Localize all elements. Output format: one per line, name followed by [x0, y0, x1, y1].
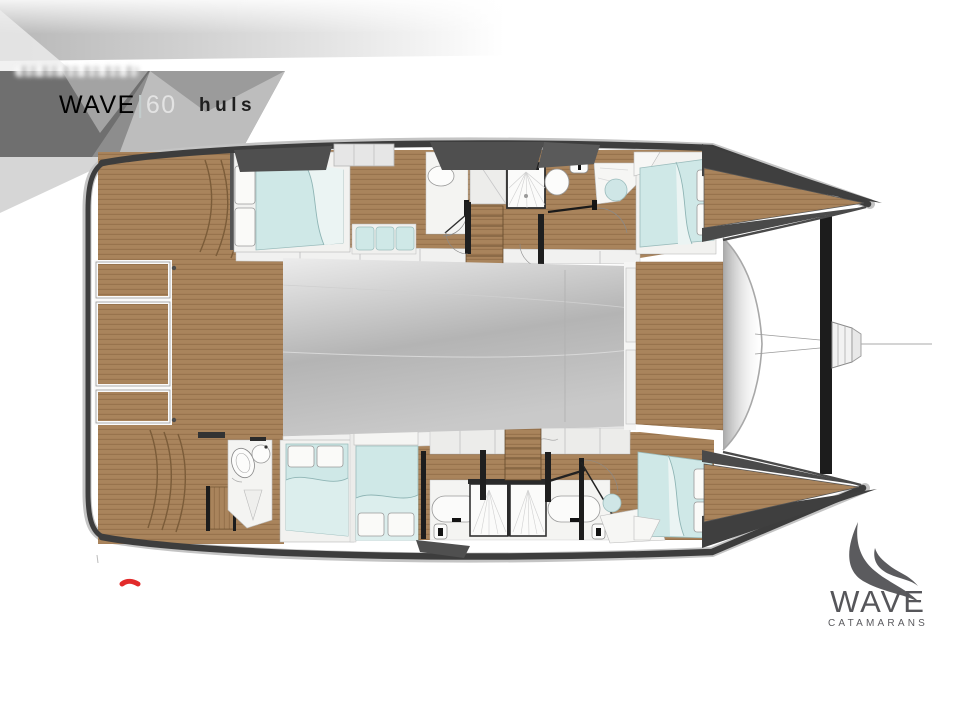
stair-post-a [480, 450, 486, 500]
faucet-mark [452, 518, 461, 522]
model-name: WAVE [59, 91, 136, 119]
stair-post-b [538, 214, 544, 268]
page: WAVE|60 huls WAVE CATAMARANS [0, 0, 960, 720]
starboard-aft-cabin [280, 440, 354, 542]
model-divider: | [136, 91, 146, 119]
coachroof-edge-c [538, 142, 600, 168]
logo-subtitle: CATAMARANS [820, 618, 936, 629]
settee-cushion [376, 227, 394, 250]
door-post [592, 200, 597, 210]
faucet-dot [264, 445, 267, 448]
top-gradient-band [0, 0, 700, 61]
walk-strip-b [626, 350, 636, 424]
cabin-divider [350, 430, 356, 542]
forward-crossbeam [820, 216, 832, 474]
logo-title: WAVE [820, 584, 936, 620]
trampoline-area [723, 238, 820, 450]
door-lintel [250, 437, 266, 441]
hatch-3 [96, 390, 170, 423]
toilet-flush-icon [438, 528, 443, 536]
stall-divider [507, 484, 510, 536]
door-post [579, 458, 584, 540]
bridle-line-a [755, 334, 820, 340]
deck-hatch [334, 144, 394, 166]
basin-oval [545, 169, 569, 195]
model-size: 60 [146, 91, 177, 119]
coachroof-edge-b [430, 142, 544, 170]
toilet-flush-icon [596, 528, 601, 536]
blurred-watermark [15, 66, 139, 77]
catamaran-plan [87, 142, 932, 558]
bowsprit [832, 322, 932, 368]
red-mark [122, 581, 138, 584]
faucet-mark [570, 518, 579, 522]
pillow [235, 208, 255, 246]
pillow [288, 446, 314, 467]
aft-bulkhead [230, 150, 234, 250]
hatch-2 [96, 302, 170, 386]
starboard-aft-head [228, 437, 272, 528]
door-post-a [206, 486, 210, 531]
crossbeam-bar [820, 216, 832, 474]
bow-port [702, 144, 882, 242]
door-post [421, 451, 426, 539]
door-lintel [198, 432, 225, 438]
stair-post-b [545, 452, 551, 502]
starboard-mid-cabin [350, 424, 426, 542]
hatch-knob-2 [172, 418, 176, 422]
gray-tick [97, 555, 98, 563]
settee-cushion [396, 227, 414, 250]
foredeck [624, 262, 723, 430]
blanket-fold [286, 477, 348, 536]
hatch-1 [96, 262, 170, 298]
band-highlight [0, 0, 700, 34]
anchor-roller [852, 328, 861, 362]
deck-front-wedge [723, 238, 762, 450]
coachroof-edge-a [234, 146, 332, 172]
round-stool [603, 494, 621, 512]
brand-mark: huls [199, 95, 256, 117]
settee-cushion [356, 227, 374, 250]
banner-model-title: WAVE|60 [59, 91, 177, 120]
stair-post-a [465, 202, 471, 254]
saloon-deck [283, 258, 630, 436]
round-basin [605, 179, 627, 201]
bowsprit-bracket [832, 322, 852, 368]
bridle-line-b [755, 348, 820, 354]
pillow [317, 446, 343, 467]
hatch-knob-1 [172, 266, 176, 270]
pillow [358, 513, 384, 536]
cockpit-hatches [96, 262, 176, 423]
shower-drain [524, 194, 528, 198]
port-settee [352, 224, 416, 254]
center-foredeck-wood [636, 262, 723, 430]
pillow [388, 513, 414, 536]
saloon-surface [283, 258, 630, 436]
walk-strip-a [626, 268, 636, 342]
